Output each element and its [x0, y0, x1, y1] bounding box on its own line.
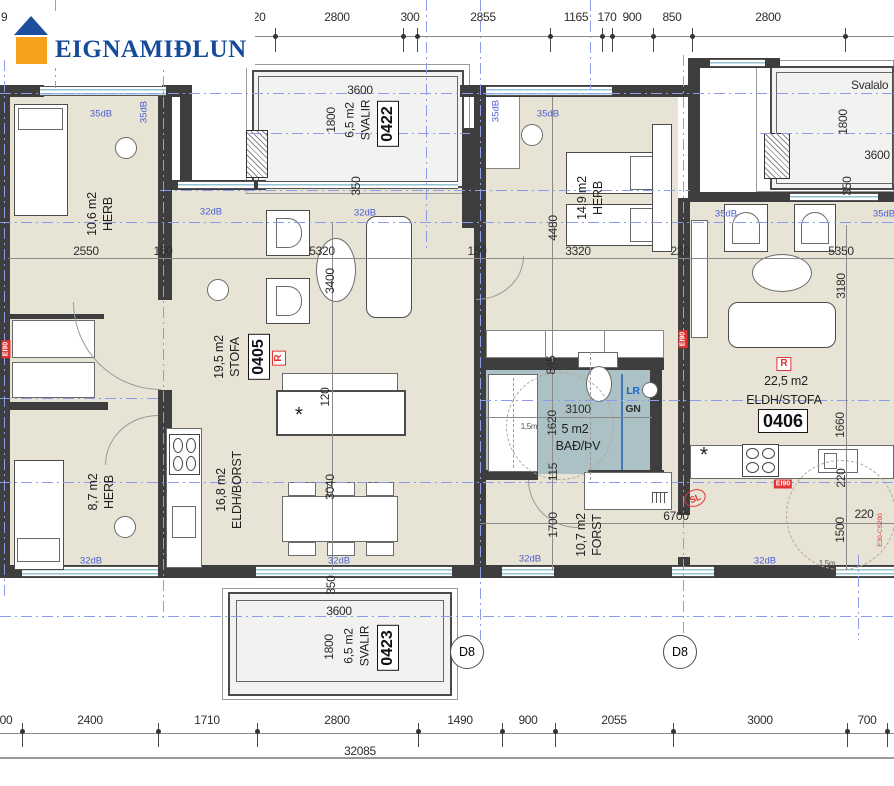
sofa-stofa: [366, 216, 412, 318]
brand-logo: EIGNAMIÐLUN: [10, 12, 255, 68]
dim-label: 2400: [77, 714, 103, 726]
dim-label: 300: [400, 11, 419, 23]
dim-label: 150: [467, 245, 486, 257]
closet-rod-icon: [652, 492, 668, 503]
dim-label: 2800: [755, 11, 781, 23]
dim-tick: [257, 723, 258, 747]
balcony-door-0423: [256, 566, 452, 577]
balcony-divider-post-2: [764, 133, 790, 179]
brand-name: EIGNAMIÐLUN: [55, 37, 247, 64]
room-area: 5 m2: [562, 421, 589, 437]
fire-label-ei90: EI90: [679, 330, 688, 348]
washbasin: [642, 382, 658, 398]
table-oval-right: [752, 254, 812, 292]
room-label-svalir-0422: 6,5 m2 SVALIR: [342, 100, 373, 141]
dining-table: [282, 496, 398, 542]
room-name: SVALIR: [357, 626, 373, 667]
room-name: STOFA: [227, 337, 243, 377]
room-area: 10,7 m2: [573, 513, 589, 557]
detail-marker-text: D8: [459, 645, 475, 659]
dim-label: 1700: [547, 512, 559, 538]
room-label-0406-area: 22,5 m2: [764, 373, 808, 389]
house-body-shape: [16, 37, 47, 64]
detail-marker-d8: D8: [450, 635, 484, 669]
acoustic-label: 35dB: [873, 209, 894, 219]
dim-label: 3600: [347, 84, 373, 96]
bed-mid-pillow-1: [630, 156, 654, 190]
dim-label: 3320: [565, 245, 591, 257]
unit-number-0405: 0405: [248, 334, 270, 380]
room-name: HERB: [590, 181, 606, 215]
acoustic-label: 32dB: [519, 554, 541, 564]
dim-tick: [612, 28, 613, 52]
room-name: HERB: [101, 475, 117, 509]
fixture-circle: [207, 279, 229, 301]
dim-label: 2800: [324, 714, 350, 726]
dim-label: 220: [670, 245, 689, 257]
dim-label: 220: [835, 468, 847, 487]
unit-number-0422: 0422: [377, 101, 399, 147]
sl-text: SL: [688, 491, 702, 505]
detail-marker-d8: D8: [663, 635, 697, 669]
room-label-bath-area: 5 m2: [562, 421, 589, 437]
room-label-svalaloft: Svalalo: [851, 79, 888, 91]
dim-label: 1620: [546, 410, 558, 436]
dim-tick: [403, 28, 404, 52]
dining-chair: [288, 542, 316, 556]
appliance-star-symbol: *: [295, 403, 303, 427]
dim-label: 4480: [547, 215, 559, 241]
cooktop-left: [169, 434, 200, 475]
dim-tick: [653, 28, 654, 52]
window-top-right: [710, 59, 765, 67]
dim-tick: [158, 723, 159, 747]
wall-right-step: [688, 58, 700, 200]
dim-tick: [673, 723, 674, 747]
dim-tick: [602, 28, 603, 52]
bed-nw-pillow: [18, 108, 63, 130]
dim-tick: [847, 723, 848, 747]
room-name: ELDH/STOFA: [746, 392, 822, 408]
centerline: [760, 133, 894, 134]
dimension-dash-bath: [590, 352, 591, 480]
overall-dim-label: 32085: [344, 745, 376, 757]
house-roof-shape: [14, 16, 48, 35]
centerline: [160, 190, 690, 191]
centerline: [858, 555, 859, 640]
room-label-stofa: 19,5 m2 STOFA: [211, 335, 244, 379]
room-area: 6,5 m2: [342, 102, 358, 138]
dim-label: 5320: [309, 245, 335, 257]
bed-mid-headboard: [652, 124, 672, 252]
dim-label: 2855: [470, 11, 496, 23]
dim-label: 1490: [447, 714, 473, 726]
window-stofa-top: [178, 181, 254, 189]
room-label-eldh-borst: 16,8 m2 ELDH/BORST: [213, 451, 246, 529]
kitchen-backsplash: [282, 373, 398, 391]
fixture-circle: [521, 124, 543, 146]
room-label-0406-name: ELDH/STOFA: [746, 392, 822, 408]
dim-label: 120: [319, 387, 331, 406]
dim-label: 700: [857, 714, 876, 726]
room-name: SVALIR: [358, 100, 374, 141]
sink-left: [172, 506, 196, 538]
centerline: [480, 0, 481, 640]
centerline: [426, 0, 427, 250]
centerline: [0, 482, 894, 483]
acoustic-label: 32dB: [80, 556, 102, 566]
dim-label: 2550: [73, 245, 99, 257]
room-area: 19,5 m2: [211, 335, 227, 379]
room-area: 22,5 m2: [764, 373, 808, 389]
centerline: [683, 55, 684, 645]
dim-tick: [502, 723, 503, 747]
wall-bath-top: [478, 358, 664, 370]
dim-tick: [418, 723, 419, 747]
dim-label: 170: [597, 11, 616, 23]
fixture-circle: [115, 137, 137, 159]
room-label-herb-mid: 14,9 m2 HERB: [574, 176, 607, 220]
page-bottom-rule: [0, 757, 894, 759]
window-right-living: [790, 193, 878, 201]
room-name: ELDH/BORST: [229, 451, 245, 529]
centerline: [4, 60, 5, 600]
radius-note: 1,5m: [819, 560, 836, 568]
dimension-line-bottom: [0, 733, 894, 734]
dim-label: 2055: [601, 714, 627, 726]
centerline: [163, 55, 164, 620]
dim-tick: [550, 28, 551, 52]
dimension-line-top: [238, 36, 894, 37]
centerline: [0, 398, 160, 399]
acoustic-label: 35dB: [537, 109, 559, 119]
wall-step-vertical: [180, 85, 192, 185]
floorplan-canvas: 9 820 2800 300 2855 1165 170 900 850 280…: [0, 0, 894, 786]
balcony-divider-post-1: [246, 130, 268, 178]
room-label-herb-sw: 8,7 m2 HERB: [85, 473, 118, 510]
acoustic-label: 35dB: [139, 101, 149, 123]
room-label-forst: 10,7 m2 FORST: [573, 513, 606, 557]
dim-label: 3600: [864, 149, 890, 161]
centerline: [0, 616, 894, 617]
cooktop-right: [742, 444, 779, 477]
dim-label: 1710: [194, 714, 220, 726]
acoustic-label: 35dB: [715, 209, 737, 219]
plumb-label-gn: GN: [625, 404, 640, 415]
acoustic-label: 32dB: [754, 556, 776, 566]
room-label-herb-nw: 10,6 m2 HERB: [84, 192, 117, 236]
radius-note: 1,5m: [521, 423, 538, 431]
dim-label: 3400: [324, 268, 336, 294]
unit-number-0423: 0423: [377, 625, 399, 671]
dim-label: 2800: [324, 11, 350, 23]
plumb-label-lr: LR: [626, 386, 639, 397]
dim-label: 3000: [747, 714, 773, 726]
room-area: 10,6 m2: [84, 192, 100, 236]
room-name: FORST: [589, 514, 605, 555]
dim-label: 900: [622, 11, 641, 23]
wall-left-outer: [0, 85, 10, 577]
fire-label-r: R: [776, 357, 791, 371]
appliance-star-symbol: *: [700, 443, 708, 467]
dimension-line-bath: [486, 417, 652, 418]
centerline: [0, 93, 894, 94]
detail-marker-text: D8: [672, 645, 688, 659]
dim-label: 3180: [835, 273, 847, 299]
dimension-line-mid: [8, 258, 894, 259]
room-area: 16,8 m2: [213, 468, 229, 512]
window-bedroom-mid: [486, 86, 612, 96]
dim-label: 350: [350, 176, 362, 195]
wardrobe-left-2: [12, 362, 95, 398]
armchair-right-2-seat: [801, 212, 829, 244]
dimension-line-v2: [552, 97, 553, 570]
dim-label: 845: [545, 355, 557, 374]
dim-tick: [275, 28, 276, 52]
unit-number-0406: 0406: [758, 409, 808, 433]
closet-forst: [584, 472, 672, 510]
dining-chair: [366, 542, 394, 556]
dim-label: 1800: [837, 109, 849, 135]
centerline: [590, 0, 591, 90]
fixture-circle: [114, 516, 136, 538]
dim-tick: [22, 723, 23, 747]
window-bedroom-nw: [40, 86, 166, 96]
room-label-svalir-0423: 6,5 m2 SVALIR: [341, 626, 372, 667]
acoustic-label: 35dB: [90, 109, 112, 119]
bed-sw-pillow: [17, 538, 60, 562]
dining-chair: [288, 482, 316, 496]
dim-label: 220: [854, 508, 873, 520]
bed-mid-pillow-2: [630, 208, 654, 242]
dim-label: 1165: [564, 11, 589, 23]
dim-label-partial: 9: [1, 11, 7, 23]
dim-label: 850: [662, 11, 681, 23]
window-forst-2: [672, 566, 714, 577]
closet-right-tall: [691, 220, 708, 338]
room-name: BAÐ/ÞV: [556, 438, 601, 454]
dim-tick: [555, 723, 556, 747]
dim-label: 150: [153, 245, 172, 257]
dim-label: 5350: [828, 245, 854, 257]
room-area: 8,7 m2: [85, 473, 101, 510]
dim-label: 00: [0, 714, 12, 726]
bath-partition-line: [621, 374, 623, 470]
armchair-stofa-2-seat: [276, 286, 302, 316]
dim-label: 115: [547, 463, 559, 481]
dim-label: 1660: [834, 412, 846, 438]
dim-label: 3040: [324, 474, 336, 500]
acoustic-label: 32dB: [328, 556, 350, 566]
room-name: HERB: [100, 197, 116, 231]
fire-label-ei90: EI90: [774, 480, 792, 489]
dimension-line-forst: [480, 523, 894, 524]
fire-label-e30: E30-CS200: [878, 513, 885, 547]
fire-label-ei90: EI90: [2, 340, 11, 358]
wall-bedroom-sw-north: [8, 402, 108, 410]
wall-bath-right: [650, 358, 662, 480]
dim-label: 350: [841, 176, 853, 195]
dim-label: 350: [325, 575, 337, 594]
acoustic-label: 32dB: [354, 208, 376, 218]
centerline: [480, 400, 894, 401]
dim-tick: [692, 28, 693, 52]
dim-label: 6700: [663, 510, 689, 522]
window-forst-1: [502, 566, 554, 577]
house-icon: [14, 16, 48, 64]
acoustic-label: 32dB: [200, 207, 222, 217]
acoustic-label: 35dB: [491, 100, 501, 122]
dim-label: 3600: [326, 605, 352, 617]
dim-label: 1800: [323, 634, 335, 660]
dim-label: 3100: [565, 403, 591, 415]
dim-label: 1500: [834, 517, 846, 543]
room-area: 14,9 m2: [574, 176, 590, 220]
dim-label: 1800: [325, 107, 337, 133]
centerline: [0, 222, 894, 223]
dim-tick: [417, 28, 418, 52]
fire-label-r: R: [272, 350, 286, 365]
room-area: 6,5 m2: [341, 628, 357, 664]
dim-tick: [887, 723, 888, 747]
sofa-right: [728, 302, 836, 348]
dining-chair: [366, 482, 394, 496]
dim-label: 900: [518, 714, 537, 726]
wardrobe-band-bedroom-mid: [486, 330, 664, 358]
wall-top-nw: [0, 85, 44, 97]
room-label-bath-name: BAÐ/ÞV: [556, 438, 601, 454]
dim-tick: [845, 28, 846, 52]
